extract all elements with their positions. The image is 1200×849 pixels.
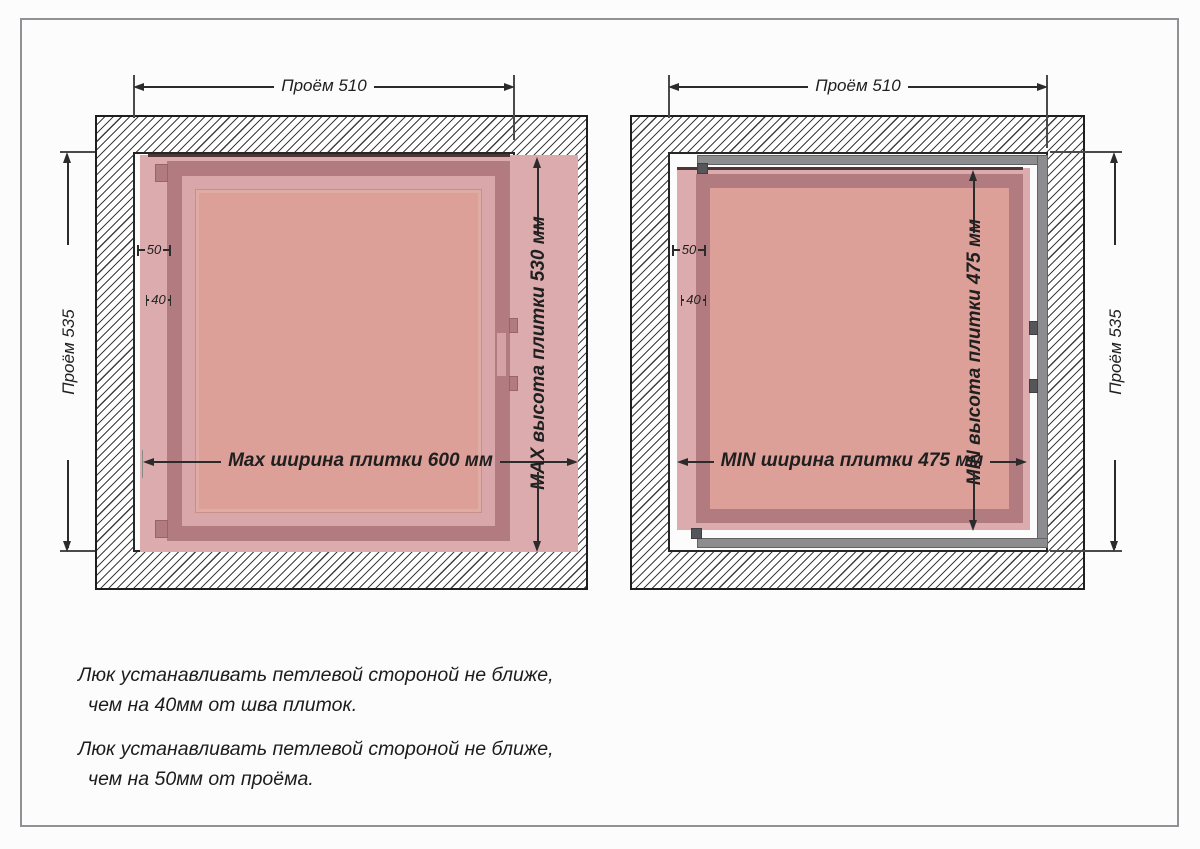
latch-handle-left-diagram — [497, 333, 506, 376]
dim-label: Проём 510 — [281, 76, 366, 96]
dim-opening-height-right: Проём 535 — [1106, 309, 1126, 394]
hinge-top-left-diagram — [155, 164, 168, 182]
dim-label: 50 — [147, 242, 161, 257]
arrowhead-icon — [567, 458, 578, 466]
arrowhead-icon — [969, 520, 977, 531]
installation-notes: Люк устанавливать петлевой стороной не б… — [78, 660, 698, 808]
dim-label: 40 — [151, 292, 165, 307]
dim-opening-height-left: Проём 535 — [59, 309, 79, 394]
latch-top-right-diagram — [1029, 321, 1038, 335]
arrowhead-icon — [143, 458, 154, 466]
dim-offset-seam-right: 40 — [681, 293, 706, 307]
note-opening: Люк устанавливать петлевой стороной не б… — [78, 734, 698, 794]
arrowhead-icon — [1037, 83, 1048, 91]
dim-label: 40 — [686, 292, 700, 307]
hatch-frame-bottom-bar — [697, 538, 1048, 548]
arrowhead-icon — [1110, 541, 1118, 552]
dim-offset-opening-left: 50 — [137, 243, 171, 257]
hinge-top-right-diagram — [697, 163, 708, 174]
dim-offset-opening-right: 50 — [672, 243, 706, 257]
dim-label: Проём 510 — [815, 76, 900, 96]
door-top-edge-left — [148, 154, 510, 157]
hinge-bottom-left-diagram — [155, 520, 168, 538]
arrowhead-icon — [1016, 458, 1027, 466]
latch-bottom-right-diagram — [1029, 379, 1038, 393]
latch-bottom-left-diagram — [509, 376, 518, 391]
note-line: Люк устанавливать петлевой стороной не б… — [78, 738, 554, 760]
hatch-frame-right-bar — [1037, 155, 1048, 548]
note-line: Люк устанавливать петлевой стороной не б… — [78, 664, 554, 686]
hatch-frame-top-bar — [697, 155, 1048, 165]
dim-opening-width-right: Проём 510 — [668, 80, 1048, 94]
note-seam: Люк устанавливать петлевой стороной не б… — [78, 660, 698, 720]
note-line: чем на 40мм от шва плиток. — [78, 694, 357, 716]
arrowhead-icon — [63, 541, 71, 552]
latch-top-left-diagram — [509, 318, 518, 333]
arrowhead-icon — [668, 83, 679, 91]
dim-tile-width-max: Max ширина плитки 600 мм — [143, 455, 578, 469]
arrowhead-icon — [677, 458, 688, 466]
arrowhead-icon — [133, 83, 144, 91]
dim-label: Max ширина плитки 600 мм — [228, 450, 493, 472]
arrowhead-icon — [504, 83, 515, 91]
dim-tile-height-min: MIN высота плитки 475 мм — [964, 219, 986, 485]
dim-tile-height-max: MAX высота плитки 530 мм — [528, 216, 550, 490]
note-line: чем на 50мм от проёма. — [78, 768, 314, 790]
dim-opening-width-left: Проём 510 — [133, 80, 515, 94]
arrowhead-icon — [533, 541, 541, 552]
dim-label: MIN ширина плитки 475 мм — [721, 450, 984, 472]
dim-label: 50 — [682, 242, 696, 257]
hinge-bottom-right-diagram — [691, 528, 702, 539]
dim-offset-seam-left: 40 — [146, 293, 171, 307]
drawing-sheet: Проём 510 Проём 535 50 40 Max ширина пл — [0, 0, 1200, 849]
